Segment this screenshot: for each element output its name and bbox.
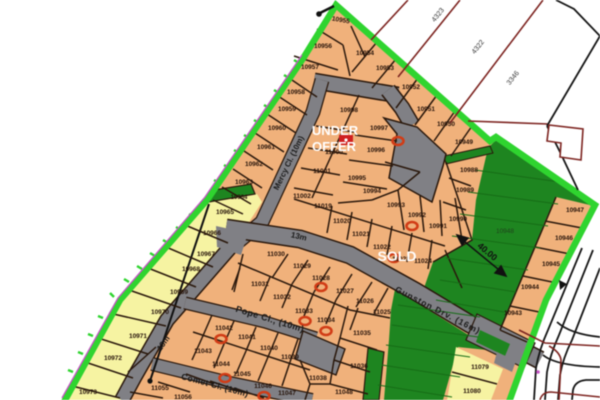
svg-text:10966: 10966 bbox=[203, 230, 221, 237]
svg-text:10996: 10996 bbox=[367, 147, 385, 154]
svg-text:11027: 11027 bbox=[336, 288, 354, 295]
svg-text:10995: 10995 bbox=[348, 175, 366, 182]
svg-text:10990: 10990 bbox=[449, 216, 467, 223]
svg-text:10954: 10954 bbox=[356, 50, 374, 57]
svg-text:11032: 11032 bbox=[273, 294, 291, 301]
svg-text:10970: 10970 bbox=[151, 309, 169, 316]
svg-text:10964: 10964 bbox=[231, 195, 248, 201]
svg-text:11042: 11042 bbox=[215, 325, 233, 332]
svg-text:11021: 11021 bbox=[352, 231, 370, 238]
svg-text:10973: 10973 bbox=[79, 389, 97, 396]
svg-text:11035: 11035 bbox=[353, 330, 371, 337]
svg-text:11033: 11033 bbox=[295, 308, 313, 315]
svg-text:UNDER: UNDER bbox=[312, 123, 359, 138]
svg-text:11024: 11024 bbox=[414, 258, 432, 265]
svg-text:11047: 11047 bbox=[278, 390, 296, 397]
svg-text:10951: 10951 bbox=[417, 106, 435, 113]
svg-text:11079: 11079 bbox=[471, 364, 489, 371]
svg-text:10950: 10950 bbox=[437, 121, 455, 128]
svg-text:10988: 10988 bbox=[460, 167, 478, 174]
svg-text:10993: 10993 bbox=[387, 202, 405, 209]
svg-text:10972: 10972 bbox=[104, 355, 122, 362]
svg-text:10968: 10968 bbox=[182, 266, 200, 273]
svg-text:10991: 10991 bbox=[429, 223, 447, 230]
svg-text:10945: 10945 bbox=[542, 261, 560, 268]
svg-text:11046: 11046 bbox=[254, 383, 272, 390]
svg-text:10946: 10946 bbox=[555, 235, 573, 242]
svg-text:10962: 10962 bbox=[245, 161, 263, 168]
svg-text:11043: 11043 bbox=[194, 348, 212, 355]
svg-text:OFFER: OFFER bbox=[312, 139, 357, 154]
svg-text:11044: 11044 bbox=[212, 361, 230, 368]
svg-text:11034: 11034 bbox=[317, 317, 335, 324]
svg-text:10956: 10956 bbox=[314, 43, 332, 50]
svg-text:10971: 10971 bbox=[129, 333, 147, 340]
svg-text:10997: 10997 bbox=[370, 125, 388, 132]
svg-text:11026: 11026 bbox=[356, 298, 374, 305]
svg-text:11080: 11080 bbox=[463, 388, 481, 395]
svg-text:11028: 11028 bbox=[312, 275, 330, 282]
svg-text:11031: 11031 bbox=[251, 281, 269, 288]
svg-text:10957: 10957 bbox=[301, 64, 319, 71]
svg-text:10948: 10948 bbox=[496, 228, 514, 235]
svg-text:11030: 11030 bbox=[267, 251, 285, 258]
svg-text:11019: 11019 bbox=[314, 203, 332, 210]
svg-text:11039: 11039 bbox=[281, 354, 299, 361]
svg-text:11038: 11038 bbox=[309, 375, 327, 382]
svg-text:11001: 11001 bbox=[313, 168, 331, 175]
svg-text:10943: 10943 bbox=[504, 310, 522, 317]
svg-text:10944: 10944 bbox=[521, 284, 539, 291]
svg-text:11041: 11041 bbox=[238, 334, 256, 341]
svg-text:11055: 11055 bbox=[151, 385, 169, 392]
svg-text:10994: 10994 bbox=[363, 188, 381, 195]
svg-text:10959: 10959 bbox=[278, 106, 296, 113]
svg-text:10969: 10969 bbox=[170, 289, 188, 296]
svg-text:10958: 10958 bbox=[287, 89, 305, 96]
svg-text:11056: 11056 bbox=[174, 394, 192, 400]
svg-text:10963: 10963 bbox=[235, 179, 253, 186]
svg-text:10992: 10992 bbox=[408, 212, 426, 219]
svg-text:10998: 10998 bbox=[340, 107, 358, 114]
svg-text:10961: 10961 bbox=[257, 144, 275, 151]
svg-text:SOLD: SOLD bbox=[378, 248, 417, 264]
svg-text:10947: 10947 bbox=[566, 207, 584, 214]
svg-text:11020: 11020 bbox=[333, 218, 351, 225]
svg-text:10960: 10960 bbox=[268, 125, 286, 132]
svg-text:11040: 11040 bbox=[260, 345, 278, 352]
svg-text:11048: 11048 bbox=[335, 389, 353, 396]
svg-text:10967: 10967 bbox=[197, 251, 215, 258]
svg-text:10965: 10965 bbox=[216, 209, 234, 216]
svg-text:11025: 11025 bbox=[373, 309, 391, 316]
svg-text:10953: 10953 bbox=[376, 65, 394, 72]
svg-text:11036: 11036 bbox=[350, 363, 368, 370]
svg-text:10952: 10952 bbox=[402, 84, 420, 91]
svg-text:10949: 10949 bbox=[455, 139, 473, 146]
svg-text:11029: 11029 bbox=[293, 263, 311, 270]
svg-text:11045: 11045 bbox=[233, 371, 251, 378]
svg-text:11002: 11002 bbox=[293, 193, 311, 200]
svg-text:10989: 10989 bbox=[456, 187, 474, 194]
